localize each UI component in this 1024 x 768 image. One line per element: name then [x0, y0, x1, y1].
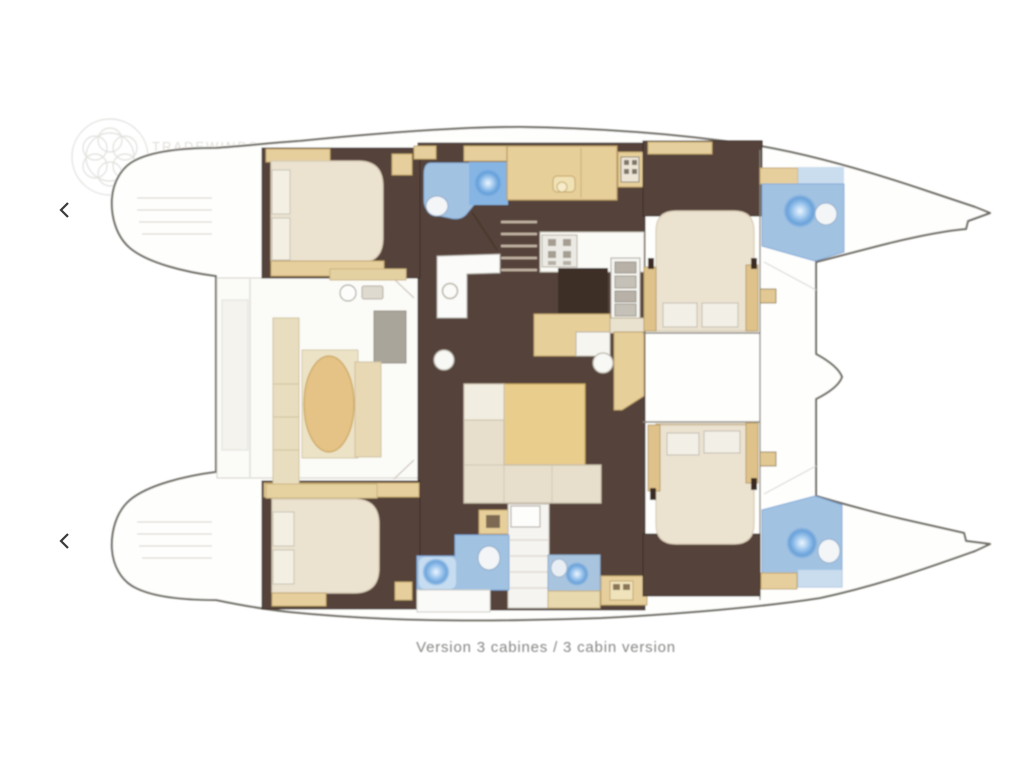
svg-text:Version 3 cabines / 3 cabin ve: Version 3 cabines / 3 cabin version: [416, 639, 676, 656]
